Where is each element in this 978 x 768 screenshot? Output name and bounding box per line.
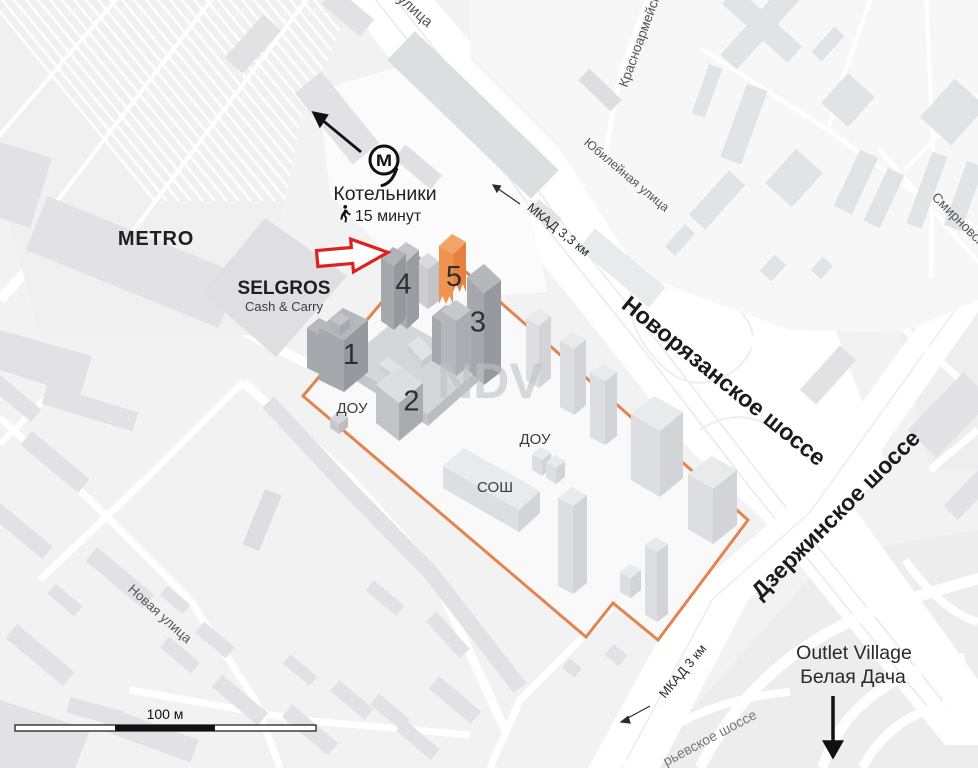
svg-text:3: 3	[470, 307, 486, 339]
svg-text:4: 4	[395, 269, 411, 301]
svg-text:ДОУ: ДОУ	[519, 431, 550, 448]
svg-text:100 м: 100 м	[147, 706, 184, 722]
svg-text:15 минут: 15 минут	[355, 208, 422, 225]
svg-text:5: 5	[446, 261, 462, 293]
svg-text:SELGROS: SELGROS	[238, 278, 331, 299]
svg-text:Outlet Village: Outlet Village	[796, 642, 912, 664]
svg-text:NDV: NDV	[437, 353, 543, 409]
svg-text:Белая Дача: Белая Дача	[800, 666, 906, 688]
svg-text:1: 1	[343, 339, 359, 371]
svg-text:Котельники: Котельники	[333, 183, 436, 205]
svg-text:ДОУ: ДОУ	[336, 400, 367, 417]
svg-text:СОШ: СОШ	[477, 479, 513, 496]
svg-text:2: 2	[403, 386, 419, 418]
svg-text:METRO: METRO	[118, 228, 194, 250]
svg-text:Cash & Carry: Cash & Carry	[245, 299, 324, 314]
svg-text:М: М	[376, 151, 392, 169]
